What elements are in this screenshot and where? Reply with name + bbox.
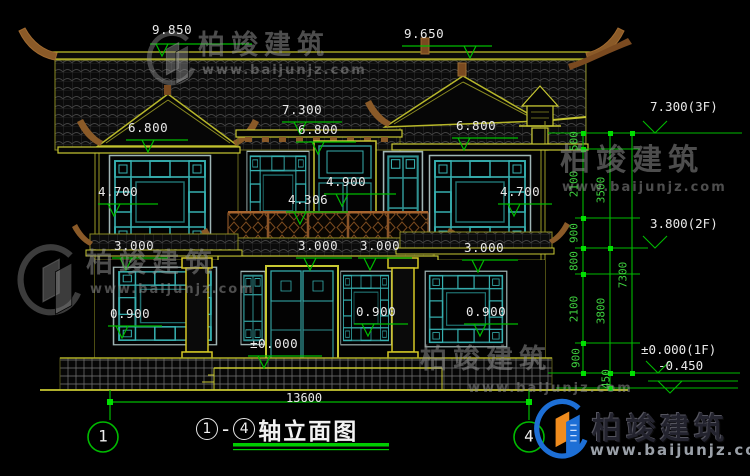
drawing-title: 1 - 4 轴立面图 [196, 412, 358, 446]
level-label: 4.900 [326, 176, 366, 189]
left-eave-curl [19, 28, 57, 60]
watermark-url-bottom: www.baijunjz.com [468, 382, 633, 395]
chain-dim: 800 [569, 251, 580, 271]
watermark-brand-top: 柏竣建筑 [198, 32, 330, 59]
level-label: 6.800 [128, 122, 168, 135]
level-label: 4.306 [288, 194, 328, 207]
level-label: 3.000 [464, 242, 504, 255]
title-axis-end: 4 [233, 418, 255, 440]
watermark-brand-right: 柏竣建筑 [560, 146, 704, 176]
right-eave-beam [392, 144, 588, 150]
level-label: 3.000 [360, 240, 400, 253]
title-dash: - [222, 417, 229, 441]
watermark-logo-left [21, 247, 78, 314]
tri-minus450 [648, 381, 738, 393]
balcony-railing [228, 212, 428, 238]
cad-elevation-screenshot: 9.850 9.650 7.300 6.800 6.800 6.800 4.70… [0, 0, 750, 476]
chain-dim: 900 [569, 223, 580, 243]
chain-dim-total: 7300 [618, 262, 629, 289]
level-label: 0.900 [356, 306, 396, 319]
axis-bubble-1-label: 1 [98, 429, 108, 445]
level-label: 6.800 [456, 120, 496, 133]
watermark-url-top: www.baijunjz.com [202, 64, 367, 77]
level-label: 0.900 [466, 306, 506, 319]
level-label: ±0.000 [250, 338, 298, 351]
tri-3f [643, 121, 667, 133]
chain-dim: 3800 [596, 298, 607, 325]
watermark-brand-bottom: 柏竣建筑 [420, 346, 552, 373]
axis-bubble-4-label: 4 [524, 429, 534, 445]
brand-logo-icon [537, 401, 585, 457]
level-label: 9.850 [152, 24, 192, 37]
level-label: 4.700 [98, 186, 138, 199]
level-label: 3.000 [298, 240, 338, 253]
watermark-url-left: www.baijunjz.com [90, 283, 255, 296]
title-axis-start: 1 [196, 418, 218, 440]
total-width-dim: 13600 [286, 392, 322, 404]
watermark-brand-left: 柏竣建筑 [86, 250, 218, 277]
level-label: 0.900 [110, 308, 150, 321]
floor-level-1f: ±0.000(1F) [641, 344, 716, 357]
chain-dim: 900 [571, 348, 582, 368]
watermark-url-right: www.baijunjz.com [562, 181, 727, 194]
title-text: 轴立面图 [258, 412, 358, 446]
tri-2f [643, 236, 667, 248]
level-label: 9.650 [404, 28, 444, 41]
level-label: 4.700 [500, 186, 540, 199]
brand-logo-url: www.baijunjz.com [590, 441, 750, 459]
floor-level-2f: 3.800(2F) [650, 218, 718, 231]
floor-level-outdoor: -0.450 [658, 360, 703, 373]
level-label: 7.300 [282, 104, 322, 117]
floor-level-3f: 7.300(3F) [650, 101, 718, 114]
chain-dim: 2100 [569, 296, 580, 323]
level-label: 6.800 [298, 124, 338, 137]
